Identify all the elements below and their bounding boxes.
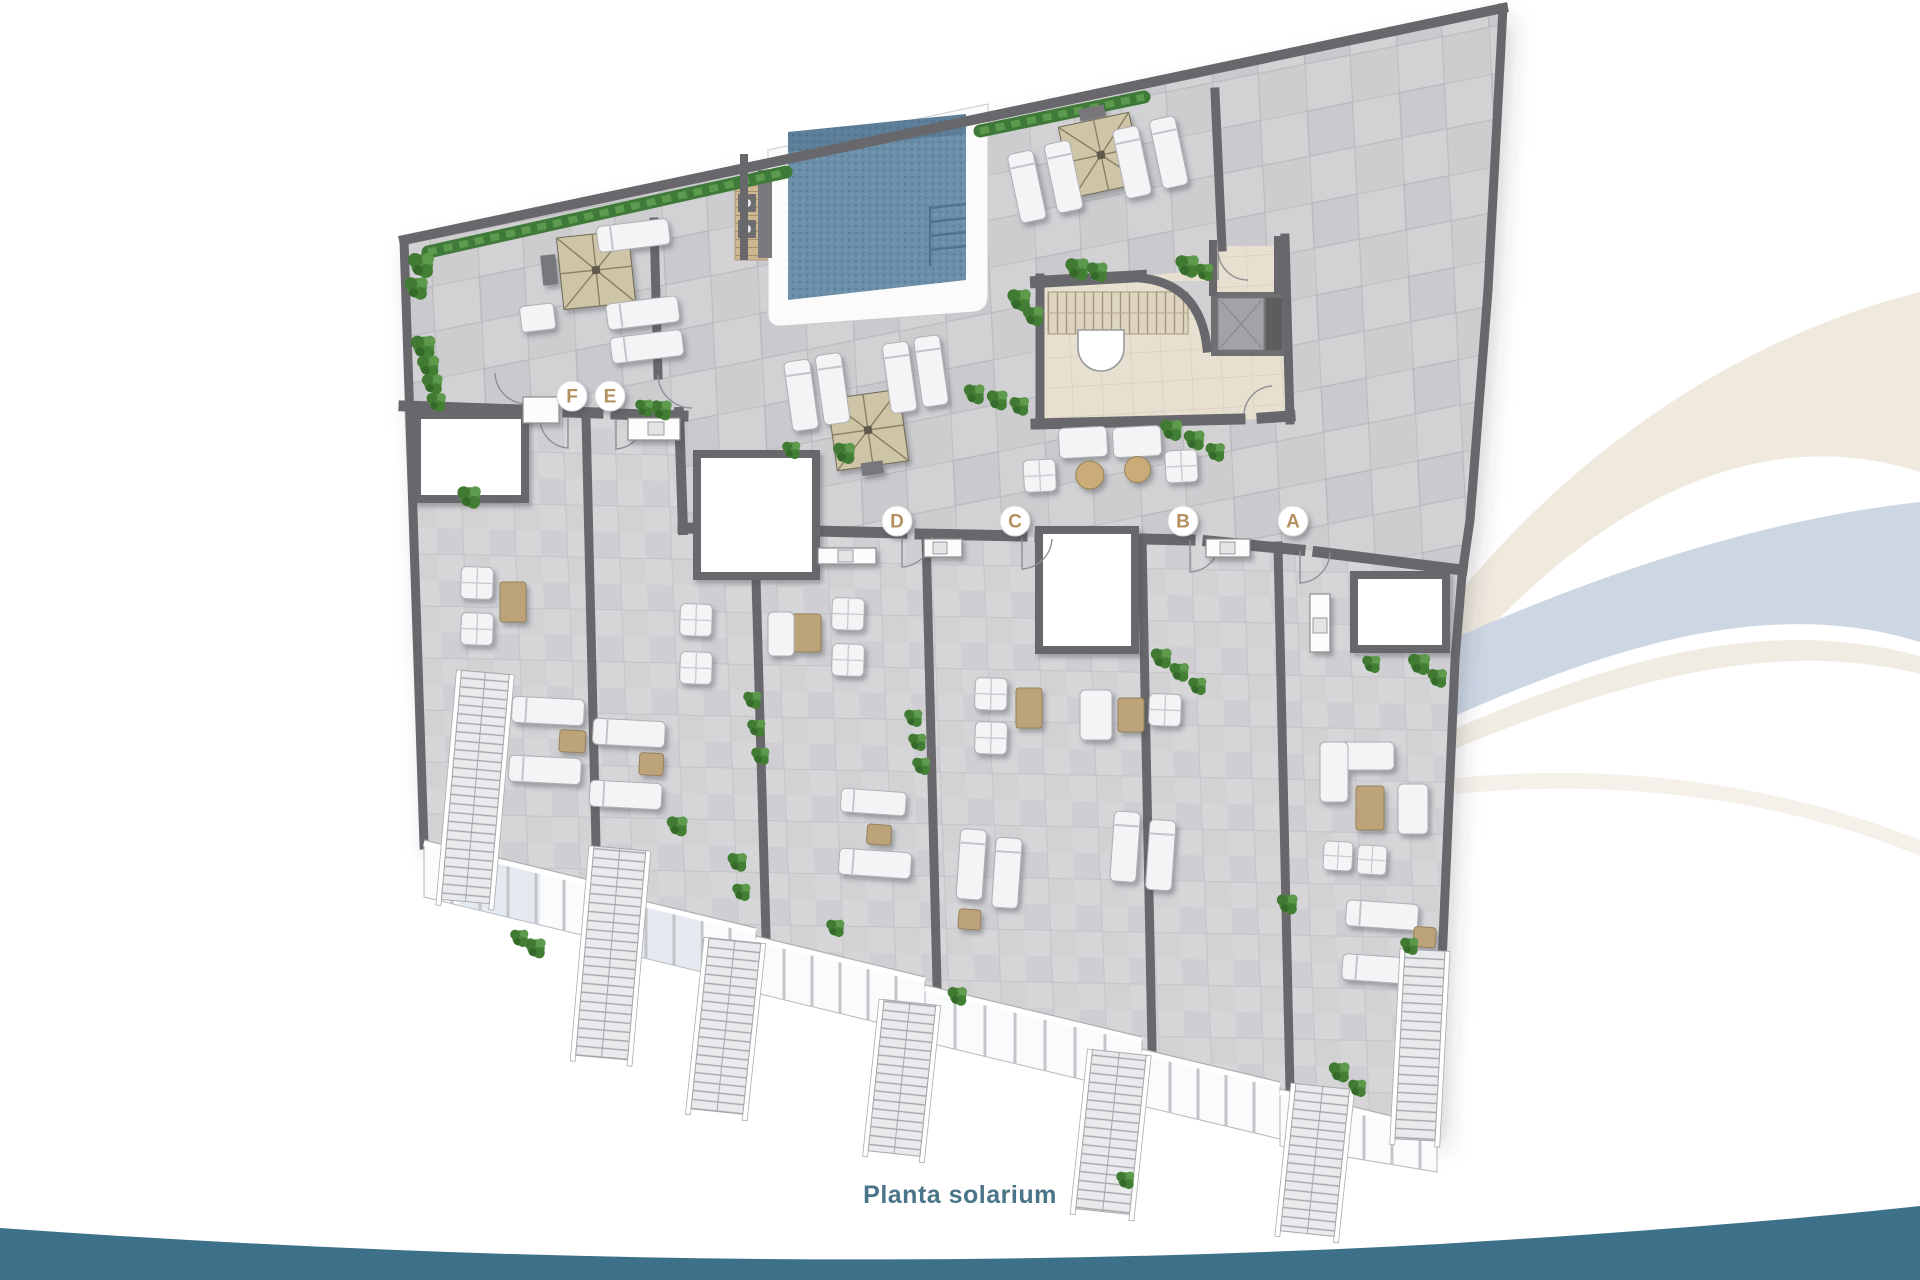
unit-label-E: E: [595, 381, 625, 411]
elevator: [1211, 292, 1285, 356]
floor-plan-image: FEDCBA: [0, 0, 1920, 1280]
unit-label-F: F: [557, 381, 587, 411]
svg-text:D: D: [890, 512, 904, 533]
unit-label-A: A: [1278, 506, 1308, 536]
bush-icon: [510, 930, 528, 948]
swoosh-beige-faint: [1455, 773, 1920, 856]
stair-flight: [1390, 949, 1450, 1147]
svg-text:C: C: [1008, 512, 1022, 533]
unit-label-B: B: [1168, 506, 1198, 536]
stairwell-skylight: [1078, 330, 1124, 371]
svg-text:A: A: [1286, 512, 1300, 533]
building: FEDCBA: [404, 8, 1503, 1243]
page: FEDCBA Planta solarium: [0, 0, 1920, 1280]
outdoor-kitchen-common: [523, 397, 559, 423]
svg-text:E: E: [604, 387, 617, 408]
unit-label-C: C: [1000, 506, 1030, 536]
unit-label-D: D: [882, 506, 912, 536]
stair-flight: [863, 999, 941, 1163]
svg-text:B: B: [1176, 512, 1190, 533]
bottom-teal-band: [0, 1206, 1920, 1280]
background-swooshes: [1436, 292, 1920, 856]
core-stairs: [1048, 292, 1188, 334]
plan-caption: Planta solarium: [0, 1181, 1920, 1210]
svg-text:F: F: [566, 387, 578, 408]
pool-zone: [735, 104, 988, 326]
bush-icon: [525, 938, 546, 958]
